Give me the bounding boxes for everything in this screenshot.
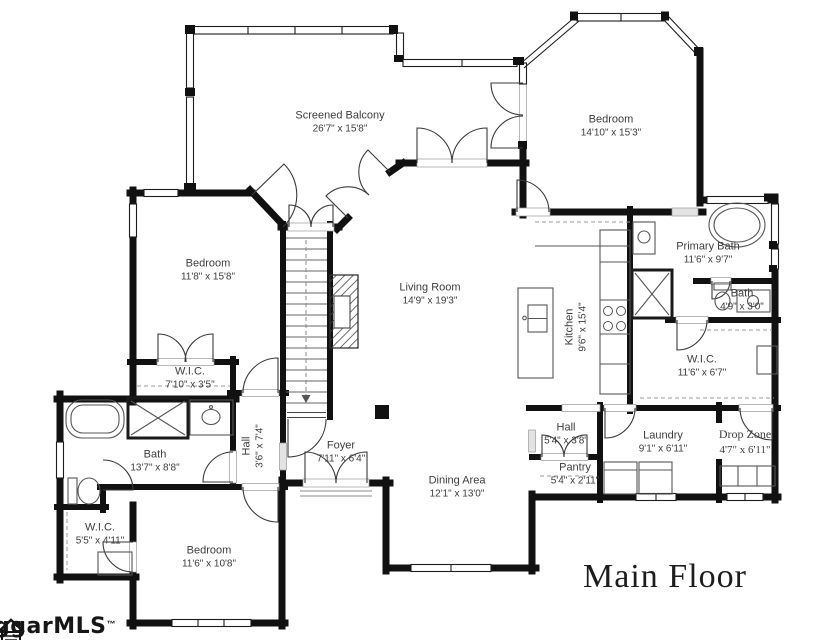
shower-icon: [632, 270, 672, 318]
sink-vanity-icon: [190, 400, 233, 435]
kitchen-island-icon: [518, 288, 553, 378]
house-icon: [0, 616, 28, 640]
wic-closet-door: [158, 334, 186, 362]
wic-door: [103, 542, 133, 572]
front-door: [336, 452, 367, 483]
toilet-icon: [68, 478, 100, 504]
front-door: [305, 452, 336, 483]
balcony-french-door: [417, 128, 452, 163]
fixtures: [66, 203, 777, 575]
wic-door: [677, 320, 707, 350]
watermark-tm: ™: [106, 619, 115, 629]
fireplace-icon: [330, 275, 358, 348]
washer-icon: [604, 462, 637, 494]
wall-corner-blocks: [184, 12, 777, 273]
bench-icon: [720, 466, 775, 486]
stair-door: [288, 419, 326, 457]
stove-icon: [604, 307, 626, 331]
bathtub-icon: [66, 400, 124, 438]
floor-plan-drawing: [0, 0, 825, 640]
wic-closet-door: [185, 334, 213, 362]
balcony-french-door: [452, 128, 487, 163]
sink-vanity-icon: [633, 222, 655, 254]
bathtub-icon: [709, 203, 765, 247]
page-title: Main Floor: [583, 558, 747, 596]
drop-zone-door: [740, 408, 772, 440]
sink-vanity-icon: [737, 290, 770, 312]
dryer-icon: [639, 462, 672, 494]
bedroom-door: [243, 487, 278, 522]
balcony-french-door: [359, 150, 390, 195]
mls-watermark: ggarMLS™: [0, 616, 115, 638]
shower-icon: [128, 398, 188, 438]
porch-steps: [300, 491, 372, 496]
stairs-icon: [286, 238, 327, 418]
bath-door: [203, 452, 233, 482]
structural-post: [375, 405, 389, 419]
floor-plan-page: Screened Balcony26'7" x 15'8" Bedroom14'…: [0, 0, 825, 640]
bedroom-door: [243, 358, 278, 393]
bedroom-balcony-door: [491, 83, 523, 115]
